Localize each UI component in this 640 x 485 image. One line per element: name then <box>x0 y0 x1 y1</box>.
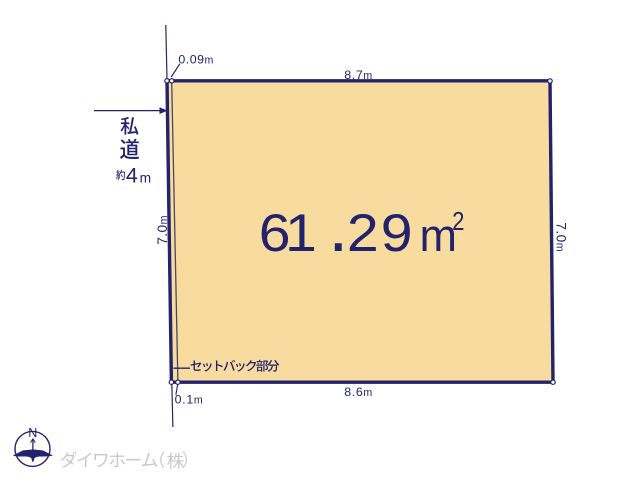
svg-text:2: 2 <box>347 203 379 263</box>
svg-text:8.7m: 8.7m <box>344 68 372 82</box>
svg-text:8.6m: 8.6m <box>344 385 372 399</box>
svg-text:0.09m: 0.09m <box>178 53 213 67</box>
svg-text:7.0m: 7.0m <box>155 215 170 245</box>
svg-text:2: 2 <box>452 208 464 237</box>
svg-text:0.1m: 0.1m <box>175 393 204 407</box>
svg-text:7.0m: 7.0m <box>553 222 568 252</box>
svg-text:4: 4 <box>126 164 138 188</box>
svg-text:N: N <box>28 426 37 440</box>
svg-text:.: . <box>328 187 348 267</box>
svg-text:9: 9 <box>381 203 413 263</box>
svg-text:m: m <box>140 171 152 186</box>
svg-text:1: 1 <box>285 203 317 263</box>
